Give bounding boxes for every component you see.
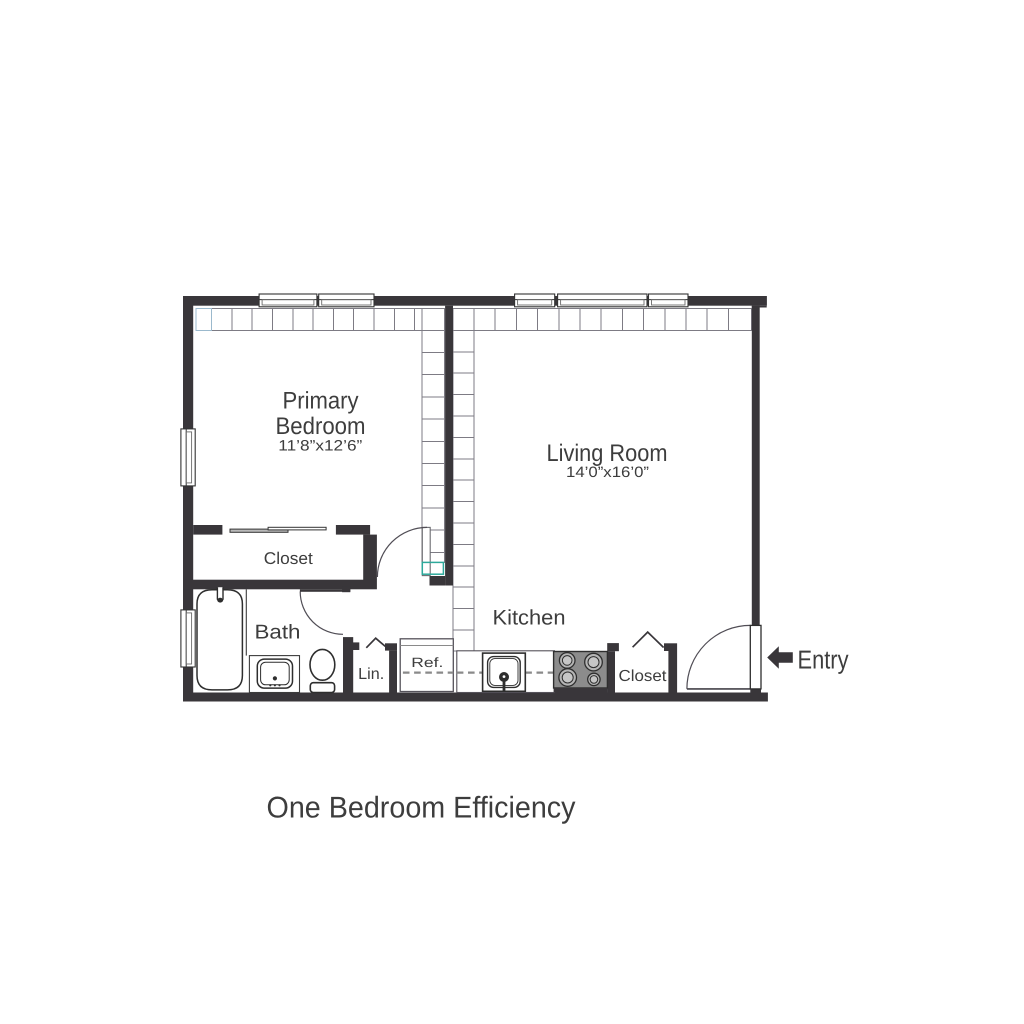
svg-text:Living Room: Living Room [547,440,668,467]
svg-text:Kitchen: Kitchen [493,606,566,629]
svg-text:14’0”x16’0”: 14’0”x16’0” [566,464,649,481]
svg-text:Ref.: Ref. [411,655,443,670]
svg-text:Entry: Entry [798,644,849,674]
svg-text:Bedroom: Bedroom [276,413,366,440]
svg-text:Closet: Closet [264,549,313,568]
svg-text:Closet: Closet [619,668,668,685]
svg-text:Bath: Bath [255,621,301,643]
svg-text:Lin.: Lin. [358,666,384,683]
svg-text:11’8”x12’6”: 11’8”x12’6” [278,438,362,455]
svg-text:One Bedroom Efficiency: One Bedroom Efficiency [267,792,576,825]
svg-text:Primary: Primary [283,388,359,415]
